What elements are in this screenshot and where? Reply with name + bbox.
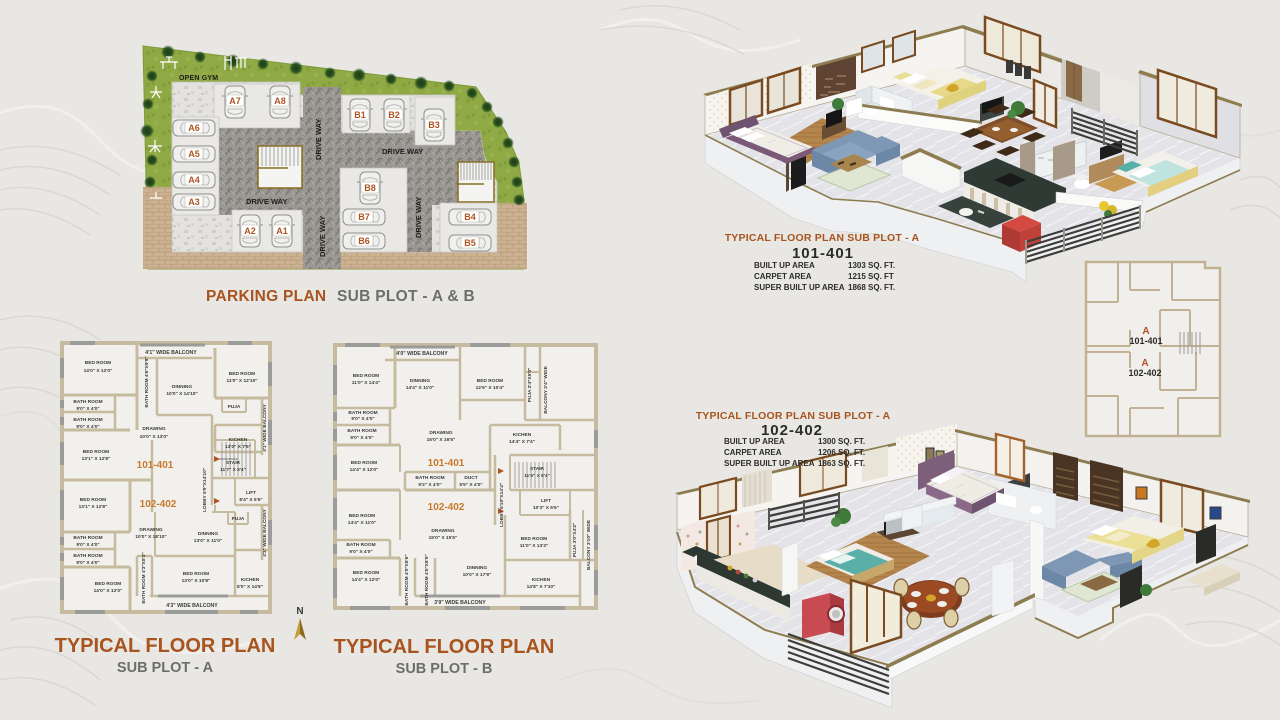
svg-text:DUCT: DUCT <box>464 475 477 481</box>
svg-text:10'0" X 13'0": 10'0" X 13'0" <box>140 434 169 440</box>
svg-text:KICHEN: KICHEN <box>229 437 248 443</box>
svg-text:TYPICAL FLOOR PLAN SUB PLOT -: TYPICAL FLOOR PLAN SUB PLOT - A <box>696 410 891 422</box>
svg-text:PUJA: PUJA <box>228 404 241 410</box>
svg-text:102-402: 102-402 <box>1128 368 1161 378</box>
svg-text:B1: B1 <box>354 110 366 120</box>
svg-text:13'0" X 7'5": 13'0" X 7'5" <box>225 444 251 450</box>
svg-text:A6: A6 <box>188 123 200 133</box>
svg-text:BATH ROOM: BATH ROOM <box>347 428 376 434</box>
svg-text:B6: B6 <box>358 236 370 246</box>
svg-text:PUJA 3'4"X5'0": PUJA 3'4"X5'0" <box>527 368 533 403</box>
svg-text:101-401: 101-401 <box>792 245 854 262</box>
svg-text:13'0" X 10'8": 13'0" X 10'8" <box>182 578 211 584</box>
svg-text:3'9" WIDE BALCONY: 3'9" WIDE BALCONY <box>434 600 486 606</box>
svg-text:11'0" X 12'10": 11'0" X 12'10" <box>226 378 257 384</box>
svg-text:9'0" X 4'0": 9'0" X 4'0" <box>350 435 373 441</box>
svg-text:DRAWING: DRAWING <box>431 528 454 534</box>
svg-text:9'0" X 4'0": 9'0" X 4'0" <box>349 549 372 555</box>
svg-text:11'0" X 14'4": 11'0" X 14'4" <box>352 380 380 386</box>
svg-text:9'2" X 4'0": 9'2" X 4'0" <box>418 482 441 488</box>
svg-text:14'4" X 11'0": 14'4" X 11'0" <box>348 520 376 526</box>
svg-text:1303 SQ. FT.: 1303 SQ. FT. <box>848 261 895 270</box>
svg-text:KICHEN: KICHEN <box>513 432 532 438</box>
svg-text:4'3" WIDE BALCONY: 4'3" WIDE BALCONY <box>262 508 268 556</box>
svg-text:14'4" X 7'4": 14'4" X 7'4" <box>509 439 535 445</box>
svg-text:A4: A4 <box>188 175 200 185</box>
svg-text:1868 SQ. FT.: 1868 SQ. FT. <box>848 283 895 292</box>
svg-text:101-401: 101-401 <box>428 458 465 469</box>
svg-text:A1: A1 <box>276 226 288 236</box>
svg-text:B2: B2 <box>388 110 400 120</box>
svg-text:BUILT UP AREA: BUILT UP AREA <box>724 437 785 446</box>
svg-text:14'0" X 12'0": 14'0" X 12'0" <box>94 588 123 594</box>
svg-text:9'0" X 4'0": 9'0" X 4'0" <box>351 416 374 422</box>
svg-text:BED ROOM: BED ROOM <box>183 571 209 577</box>
svg-text:BALCONY 3'4" WIDE: BALCONY 3'4" WIDE <box>543 365 549 413</box>
svg-text:BATH ROOM 4'5"X8'5": BATH ROOM 4'5"X8'5" <box>424 554 430 605</box>
svg-text:STAIR: STAIR <box>226 460 241 466</box>
svg-text:BATH ROOM 4'6"X9'9": BATH ROOM 4'6"X9'9" <box>144 356 150 407</box>
svg-text:OPEN GYM: OPEN GYM <box>179 75 218 82</box>
svg-text:14'8" X 7'10": 14'8" X 7'10" <box>527 584 556 590</box>
svg-text:DRIVE WAY: DRIVE WAY <box>318 216 327 257</box>
svg-text:TYPICAL FLOOR PLAN: TYPICAL FLOOR PLAN <box>334 636 555 658</box>
svg-text:1300 SQ. FT.: 1300 SQ. FT. <box>818 437 865 446</box>
svg-text:SUB PLOT - A: SUB PLOT - A <box>117 660 214 676</box>
svg-text:101-401: 101-401 <box>137 460 174 471</box>
svg-text:SUPER BUILT UP AREA: SUPER BUILT UP AREA <box>754 283 845 292</box>
svg-text:10'3" X 5'6": 10'3" X 5'6" <box>533 505 559 511</box>
svg-text:BATH ROOM 4'3"X8'3": BATH ROOM 4'3"X8'3" <box>141 552 147 603</box>
svg-text:N: N <box>296 606 303 617</box>
svg-text:TYPICAL FLOOR PLAN SUB PLOT -: TYPICAL FLOOR PLAN SUB PLOT - A <box>725 232 920 244</box>
svg-text:DINNING: DINNING <box>198 531 219 537</box>
svg-text:TYPICAL FLOOR PLAN: TYPICAL FLOOR PLAN <box>55 635 276 657</box>
svg-text:15'0" X 15'5": 15'0" X 15'5" <box>429 535 458 541</box>
svg-text:SUB PLOT - B: SUB PLOT - B <box>396 661 493 677</box>
svg-text:SUPER BUILT UP AREA: SUPER BUILT UP AREA <box>724 459 815 468</box>
svg-text:CARPET AREA: CARPET AREA <box>724 448 782 457</box>
svg-text:A7: A7 <box>229 96 241 106</box>
svg-text:BED ROOM: BED ROOM <box>353 373 379 379</box>
svg-text:4'1" WIDE BALCONY: 4'1" WIDE BALCONY <box>145 350 197 356</box>
svg-text:8'0" X 14'8": 8'0" X 14'8" <box>237 584 263 590</box>
svg-text:KICHEN: KICHEN <box>241 577 260 583</box>
svg-text:PUJA 3'0"X4'2": PUJA 3'0"X4'2" <box>572 523 578 558</box>
svg-text:B5: B5 <box>464 238 476 248</box>
svg-text:13'1" X 12'8": 13'1" X 12'8" <box>82 456 111 462</box>
svg-text:14'0" X 12'0": 14'0" X 12'0" <box>84 368 113 374</box>
svg-text:DRIVE WAY: DRIVE WAY <box>314 119 323 160</box>
svg-text:10'0" X 18'10": 10'0" X 18'10" <box>135 534 166 540</box>
svg-text:102-402: 102-402 <box>428 502 465 513</box>
svg-text:SUB PLOT - A & B: SUB PLOT - A & B <box>337 288 475 305</box>
svg-text:11'6" X 8'4": 11'6" X 8'4" <box>524 473 550 479</box>
svg-text:DRIVE WAY: DRIVE WAY <box>414 197 423 238</box>
svg-text:10'0" X 17'9": 10'0" X 17'9" <box>463 572 492 578</box>
svg-text:BATH ROOM: BATH ROOM <box>415 475 444 481</box>
svg-text:102-402: 102-402 <box>140 499 177 510</box>
svg-text:10'0" X 14'10": 10'0" X 14'10" <box>166 391 197 397</box>
svg-text:DRIVE WAY: DRIVE WAY <box>246 197 287 206</box>
svg-text:A3: A3 <box>188 197 200 207</box>
svg-text:BED ROOM: BED ROOM <box>229 371 255 377</box>
svg-text:PARKING PLAN: PARKING PLAN <box>206 288 326 305</box>
svg-text:14'4" X 11'0": 14'4" X 11'0" <box>406 385 434 391</box>
svg-text:101-401: 101-401 <box>1129 336 1162 346</box>
svg-text:BATH ROOM: BATH ROOM <box>73 417 102 423</box>
svg-text:9'0" X 4'0": 9'0" X 4'0" <box>76 406 99 412</box>
svg-text:1215 SQ. FT: 1215 SQ. FT <box>848 272 894 281</box>
svg-text:8'4" X 5'6": 8'4" X 5'6" <box>239 497 262 503</box>
svg-text:4'1" WIDE BALCONY: 4'1" WIDE BALCONY <box>262 403 268 451</box>
svg-text:4'0" WIDE BALCONY: 4'0" WIDE BALCONY <box>396 351 448 357</box>
svg-text:BED ROOM: BED ROOM <box>351 460 377 466</box>
svg-text:BATH ROOM: BATH ROOM <box>73 553 102 559</box>
svg-text:1206 SQ. FT.: 1206 SQ. FT. <box>818 448 865 457</box>
svg-text:LIFT: LIFT <box>541 498 551 504</box>
svg-text:DRIVE WAY: DRIVE WAY <box>382 147 423 156</box>
svg-text:BED ROOM: BED ROOM <box>95 581 121 587</box>
svg-text:DINNING: DINNING <box>410 378 431 384</box>
svg-text:BATH ROOM 4'0"X8'6": BATH ROOM 4'0"X8'6" <box>404 554 410 605</box>
svg-text:BED ROOM: BED ROOM <box>477 378 503 384</box>
svg-text:KICHEN: KICHEN <box>532 577 551 583</box>
svg-text:BATH ROOM: BATH ROOM <box>346 542 375 548</box>
svg-text:A2: A2 <box>244 226 256 236</box>
svg-text:DRAWING: DRAWING <box>139 527 162 533</box>
svg-text:LOBBY 5'9"X14'10": LOBBY 5'9"X14'10" <box>202 468 208 512</box>
svg-text:A8: A8 <box>274 96 286 106</box>
svg-text:DRAWING: DRAWING <box>429 430 452 436</box>
svg-text:B8: B8 <box>364 183 376 193</box>
svg-text:15'0" X 16'5": 15'0" X 16'5" <box>427 437 456 443</box>
svg-text:B3: B3 <box>428 120 440 130</box>
svg-text:BATH ROOM: BATH ROOM <box>348 410 377 416</box>
svg-text:1863 SQ. FT.: 1863 SQ. FT. <box>818 459 865 468</box>
svg-text:BED ROOM: BED ROOM <box>353 570 379 576</box>
svg-text:LIFT: LIFT <box>246 490 256 496</box>
svg-text:5'5" X 4'0": 5'5" X 4'0" <box>459 482 482 488</box>
svg-text:14'4" X 12'0": 14'4" X 12'0" <box>350 467 379 473</box>
svg-text:4'3" WIDE BALCONY: 4'3" WIDE BALCONY <box>166 603 218 609</box>
svg-text:B4: B4 <box>464 212 476 222</box>
svg-text:13'0" X 11'0": 13'0" X 11'0" <box>194 538 222 544</box>
svg-text:DRAWING: DRAWING <box>142 426 165 432</box>
svg-text:STAIR: STAIR <box>530 466 545 472</box>
svg-text:PUJA: PUJA <box>232 516 245 522</box>
svg-text:BED ROOM: BED ROOM <box>83 449 109 455</box>
svg-text:B7: B7 <box>358 212 370 222</box>
svg-text:LOBBY 6'10"X14'4": LOBBY 6'10"X14'4" <box>499 483 505 527</box>
svg-text:CARPET AREA: CARPET AREA <box>754 272 812 281</box>
svg-text:BED ROOM: BED ROOM <box>349 513 375 519</box>
svg-text:BATH ROOM: BATH ROOM <box>73 399 102 405</box>
svg-text:12'6" X 10'4": 12'6" X 10'4" <box>476 385 505 391</box>
svg-text:BATH ROOM: BATH ROOM <box>73 535 102 541</box>
svg-text:14'4" X 12'0": 14'4" X 12'0" <box>352 577 381 583</box>
svg-text:BED ROOM: BED ROOM <box>80 497 106 503</box>
svg-text:DINNING: DINNING <box>467 565 488 571</box>
svg-text:9'0" X 4'0": 9'0" X 4'0" <box>76 542 99 548</box>
svg-text:BED ROOM: BED ROOM <box>85 360 111 366</box>
svg-text:11'0" X 13'3": 11'0" X 13'3" <box>520 543 548 549</box>
svg-text:A5: A5 <box>188 149 200 159</box>
svg-text:BED ROOM: BED ROOM <box>521 536 547 542</box>
svg-text:DINNING: DINNING <box>172 384 193 390</box>
svg-text:BUILT UP AREA: BUILT UP AREA <box>754 261 815 270</box>
svg-text:13'1" X 12'8": 13'1" X 12'8" <box>79 504 108 510</box>
svg-text:BALCONY 3'10" WIDE: BALCONY 3'10" WIDE <box>586 519 592 570</box>
svg-text:9'0" X 4'0": 9'0" X 4'0" <box>76 424 99 430</box>
svg-text:11'7" X 8'4": 11'7" X 8'4" <box>220 467 246 473</box>
svg-text:9'0" X 4'0": 9'0" X 4'0" <box>76 560 99 566</box>
